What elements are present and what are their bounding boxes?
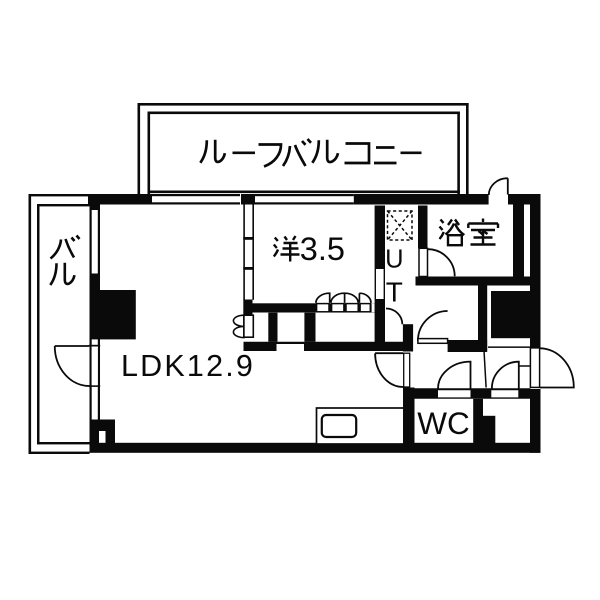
- svg-text:3.5: 3.5: [300, 231, 345, 267]
- svg-text:U: U: [385, 246, 403, 274]
- svg-text:WC: WC: [417, 405, 469, 441]
- svg-text:T: T: [386, 277, 403, 308]
- svg-text:LDK12.9: LDK12.9: [121, 349, 255, 383]
